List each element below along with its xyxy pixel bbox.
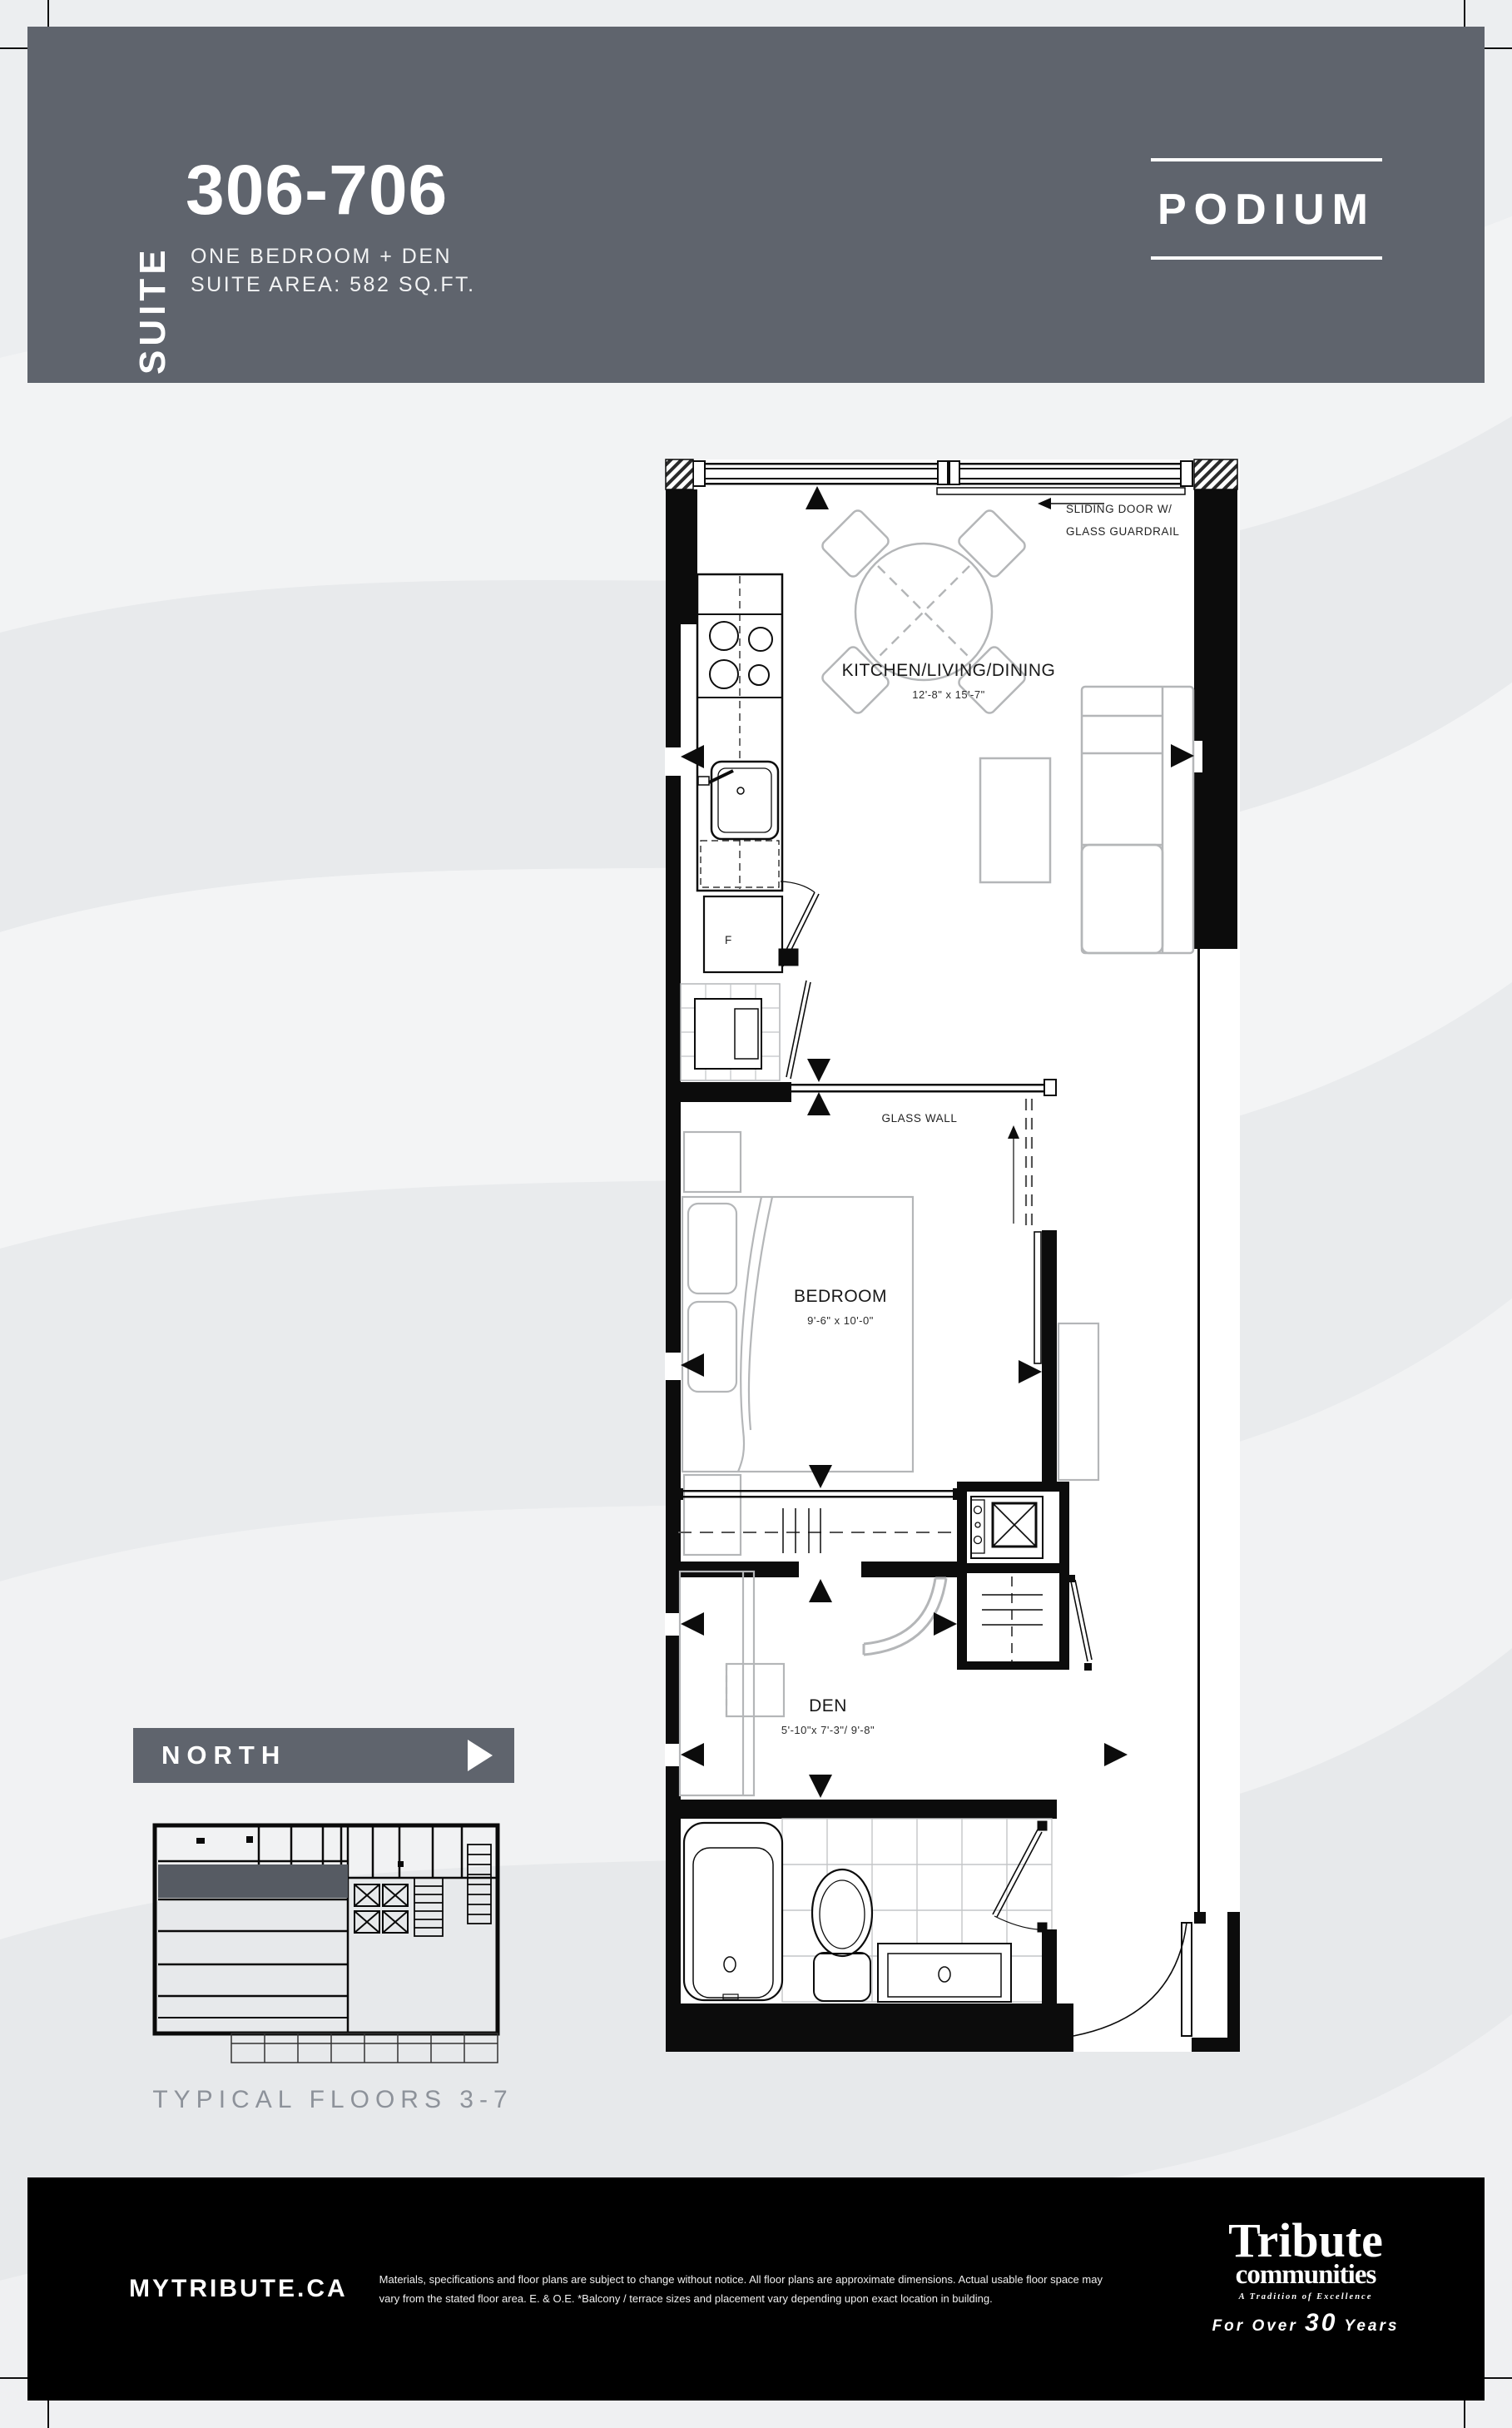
glass-wall-label: GLASS WALL xyxy=(881,1112,957,1125)
toilet xyxy=(812,1869,872,2001)
brochure-page: SUITE 306-706 ONE BEDROOM + DEN SUITE AR… xyxy=(0,0,1512,2428)
keyplan-caption: TYPICAL FLOORS 3-7 xyxy=(125,2086,541,2114)
logo-brand: Tribute xyxy=(1206,2219,1405,2262)
header-band: SUITE 306-706 ONE BEDROOM + DEN SUITE AR… xyxy=(27,27,1485,383)
north-bar: NORTH xyxy=(133,1728,514,1783)
podium-block: PODIUM xyxy=(1151,158,1382,260)
bedroom-label: BEDROOM xyxy=(794,1287,887,1306)
bathtub xyxy=(684,1823,782,2000)
tribute-logo: Tribute communities A Tradition of Excel… xyxy=(1206,2219,1405,2337)
hatch-block-left xyxy=(666,459,693,489)
suite-type: ONE BEDROOM + DEN xyxy=(191,245,452,269)
bedroom-dims: 9'-6" x 10'-0" xyxy=(807,1314,874,1327)
logo-years: For Over 30 Years xyxy=(1206,2309,1405,2337)
den-label: DEN xyxy=(809,1696,847,1715)
podium-rule-bottom xyxy=(1151,256,1382,260)
kitchen-label: KITCHEN/LIVING/DINING xyxy=(842,661,1056,680)
bed xyxy=(682,1197,913,1472)
disclaimer: Materials, specifications and floor plan… xyxy=(379,2270,1112,2308)
suite-number: 306-706 xyxy=(186,150,448,231)
footer-bar: MYTRIBUTE.CA Materials, specifications a… xyxy=(27,2177,1485,2401)
vanity xyxy=(878,1944,1011,2002)
suite-area: SUITE AREA: 582 SQ.FT. xyxy=(191,273,476,297)
laundry-closet xyxy=(957,1482,1069,1573)
den-dims: 5'-10"x 7'-3"/ 9'-8" xyxy=(781,1724,875,1736)
disclaimer-line-2: vary from the stated floor area. E. & O.… xyxy=(379,2289,1112,2308)
fridge: F xyxy=(704,896,782,972)
hatch-block-right xyxy=(1194,459,1237,489)
den-top-wall-right xyxy=(861,1562,963,1577)
floor-plan: SLIDING DOOR W/ GLASS GUARDRAIL F xyxy=(662,456,1244,2058)
kitchen-dims: 12'-8" x 15'-7" xyxy=(912,688,984,701)
sliding-door-panel xyxy=(937,488,1185,494)
north-label: NORTH xyxy=(161,1740,286,1770)
north-arrow-icon xyxy=(468,1740,493,1771)
website-link[interactable]: MYTRIBUTE.CA xyxy=(129,2275,348,2303)
svg-text:F: F xyxy=(725,934,732,946)
logo-sub: communities xyxy=(1206,2262,1405,2287)
logo-tagline: A Tradition of Excellence xyxy=(1206,2292,1405,2301)
disclaimer-line-1: Materials, specifications and floor plan… xyxy=(379,2270,1112,2289)
podium-label: PODIUM xyxy=(1151,161,1382,256)
sliding-door-label-2: GLASS GUARDRAIL xyxy=(1066,525,1180,538)
den-top-wall-left xyxy=(674,1562,799,1577)
key-plan xyxy=(148,1795,518,2073)
bathroom-right-wall xyxy=(1042,1929,1057,2006)
sliding-door-label-1: SLIDING DOOR W/ xyxy=(1066,503,1172,515)
bathroom-top-wall xyxy=(674,1800,1057,1819)
bedroom-pocket-door xyxy=(1034,1232,1041,1363)
keyplan-highlighted-suite xyxy=(158,1864,348,1898)
suite-vertical-label: SUITE xyxy=(132,158,182,391)
bedroom-divider-wall xyxy=(1042,1230,1057,1498)
kitchen-counter xyxy=(697,574,782,891)
